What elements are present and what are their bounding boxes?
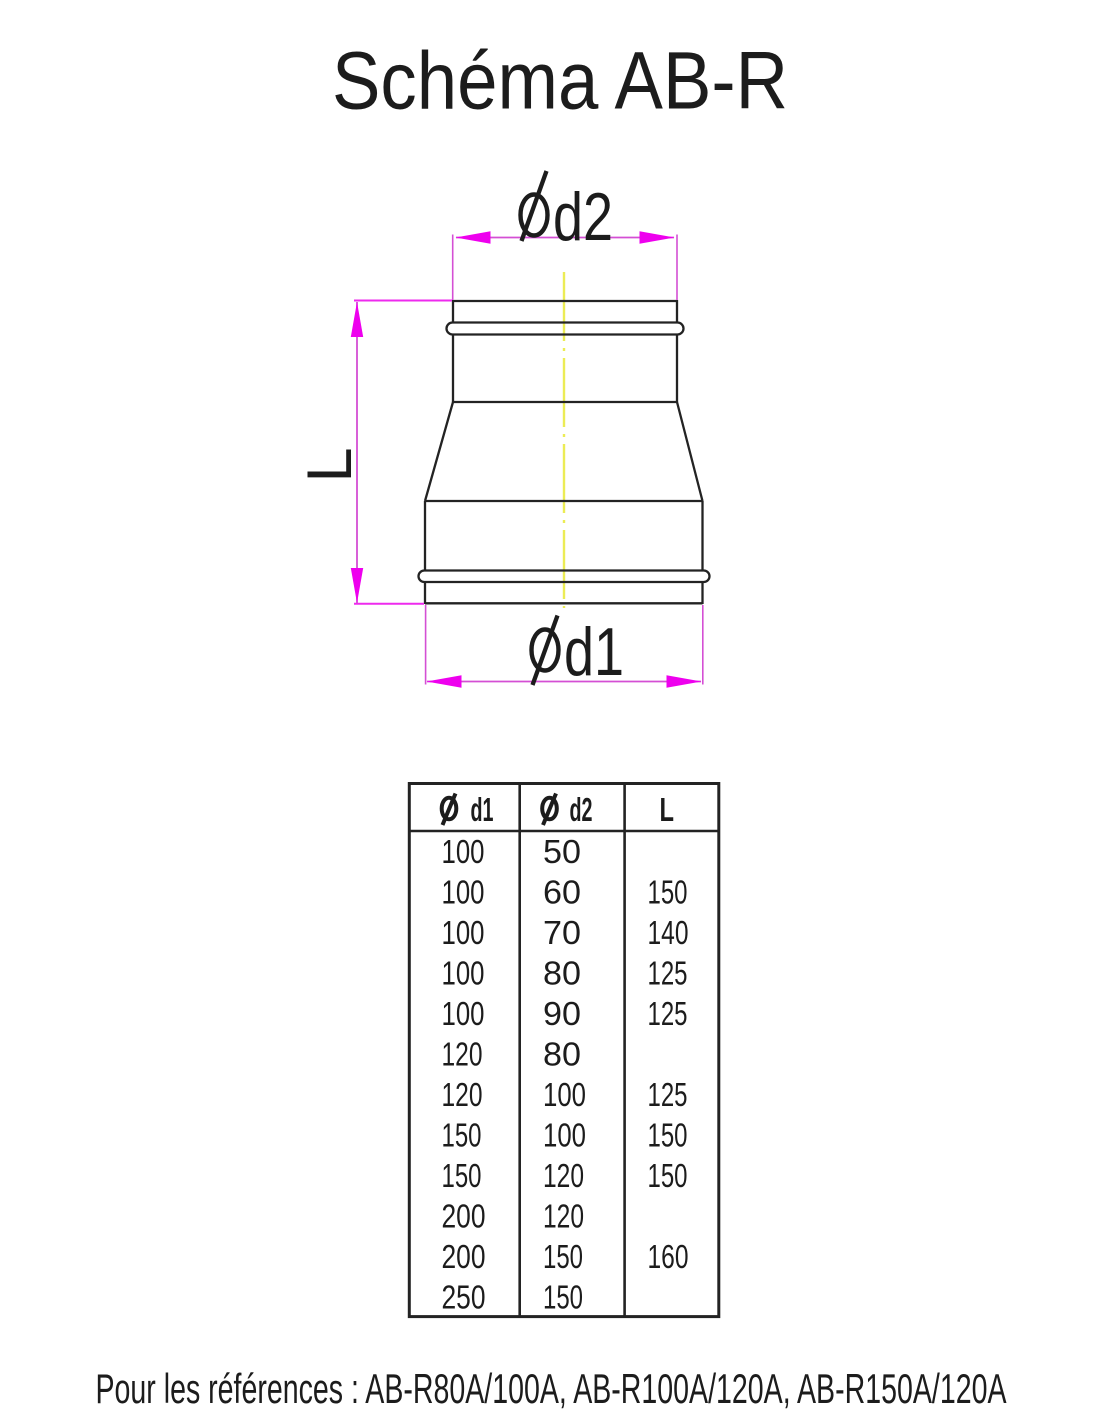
svg-text:70: 70	[543, 914, 581, 951]
svg-text:100: 100	[442, 995, 485, 1032]
svg-text:100: 100	[543, 1117, 586, 1154]
svg-text:200: 200	[442, 1238, 486, 1275]
svg-text:140: 140	[648, 914, 689, 951]
svg-text:125: 125	[648, 955, 688, 992]
svg-text:200: 200	[442, 1198, 486, 1235]
svg-text:d1: d1	[564, 614, 624, 690]
svg-text:150: 150	[648, 1117, 688, 1154]
svg-text:100: 100	[442, 833, 485, 870]
svg-text:60: 60	[543, 874, 581, 911]
svg-text:100: 100	[442, 914, 485, 951]
svg-text:d2: d2	[553, 179, 613, 255]
svg-text:80: 80	[543, 955, 581, 992]
svg-text:50: 50	[543, 833, 581, 870]
svg-text:160: 160	[648, 1238, 689, 1275]
svg-text:Pour les références : AB-R80A/: Pour les références : AB-R80A/100A, AB-R…	[96, 1365, 1007, 1412]
svg-text:100: 100	[442, 874, 485, 911]
svg-text:120: 120	[543, 1157, 584, 1194]
svg-text:120: 120	[442, 1076, 483, 1113]
svg-text:150: 150	[648, 1157, 688, 1194]
svg-text:120: 120	[543, 1198, 584, 1235]
svg-text:L: L	[295, 447, 365, 482]
svg-text:150: 150	[543, 1238, 583, 1275]
svg-text:90: 90	[543, 995, 581, 1032]
svg-text:d2: d2	[570, 791, 593, 828]
svg-text:150: 150	[442, 1157, 482, 1194]
svg-text:150: 150	[543, 1279, 583, 1316]
svg-text:d1: d1	[471, 791, 494, 828]
svg-text:125: 125	[648, 1076, 688, 1113]
svg-text:100: 100	[543, 1076, 586, 1113]
svg-text:80: 80	[543, 1036, 581, 1073]
svg-text:125: 125	[648, 995, 688, 1032]
svg-text:100: 100	[442, 955, 485, 992]
svg-text:Schéma AB-R: Schéma AB-R	[332, 36, 788, 127]
svg-text:150: 150	[442, 1117, 482, 1154]
svg-text:L: L	[660, 791, 675, 828]
svg-text:120: 120	[442, 1036, 483, 1073]
svg-text:150: 150	[648, 874, 688, 911]
svg-text:250: 250	[442, 1279, 486, 1316]
